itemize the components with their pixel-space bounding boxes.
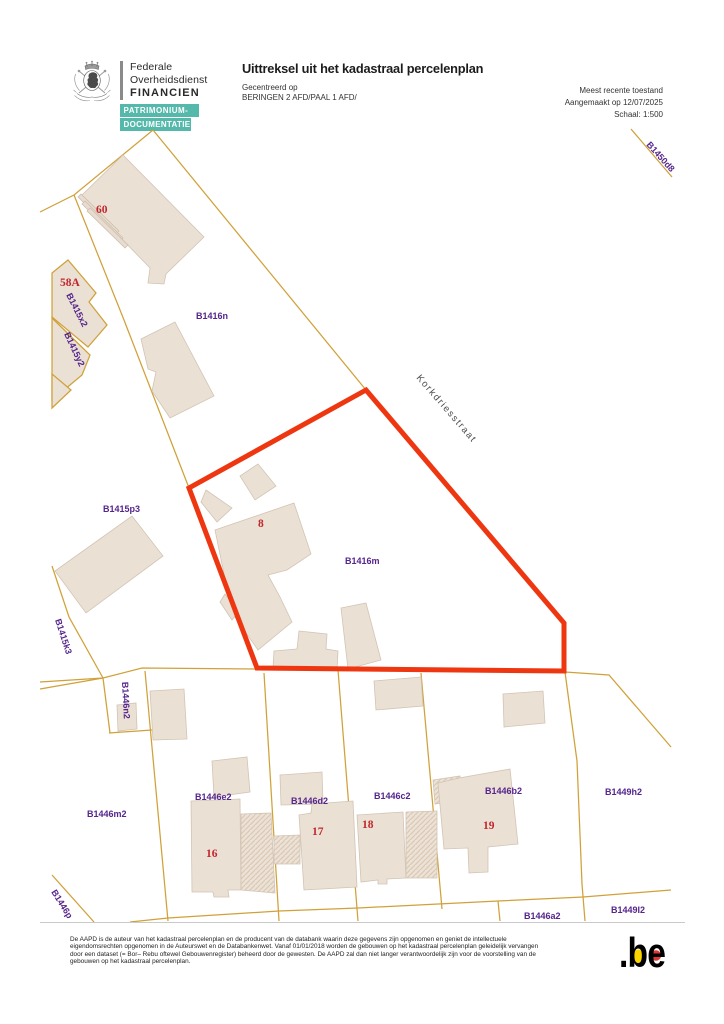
- svg-text:B1446p: B1446p: [49, 888, 75, 921]
- svg-text:B1449I2: B1449I2: [611, 905, 645, 915]
- svg-text:19: 19: [483, 820, 495, 832]
- svg-text:17: 17: [312, 826, 324, 838]
- svg-text:B1450d8: B1450d8: [645, 140, 677, 174]
- svg-text:B1446n2: B1446n2: [120, 682, 132, 720]
- svg-text:60: 60: [96, 204, 108, 216]
- svg-text:B1446a2: B1446a2: [524, 911, 561, 921]
- svg-text:B1415k3: B1415k3: [53, 618, 74, 656]
- svg-text:16: 16: [206, 848, 218, 860]
- svg-text:58A: 58A: [60, 277, 81, 289]
- svg-text:B1446c2: B1446c2: [374, 791, 411, 801]
- svg-text:B1446b2: B1446b2: [485, 786, 522, 796]
- svg-text:8: 8: [258, 518, 264, 530]
- svg-text:Korkdriesstraat: Korkdriesstraat: [414, 373, 479, 445]
- svg-text:B1416n: B1416n: [196, 311, 228, 321]
- svg-text:B1449h2: B1449h2: [605, 787, 642, 797]
- svg-text:B1446e2: B1446e2: [195, 792, 232, 802]
- svg-text:B1416m: B1416m: [345, 556, 380, 566]
- svg-text:B1446d2: B1446d2: [291, 796, 328, 806]
- svg-text:B1446m2: B1446m2: [87, 809, 127, 819]
- svg-text:B1415p3: B1415p3: [103, 504, 140, 514]
- svg-text:.be: .be: [619, 931, 665, 977]
- svg-text:18: 18: [362, 819, 374, 831]
